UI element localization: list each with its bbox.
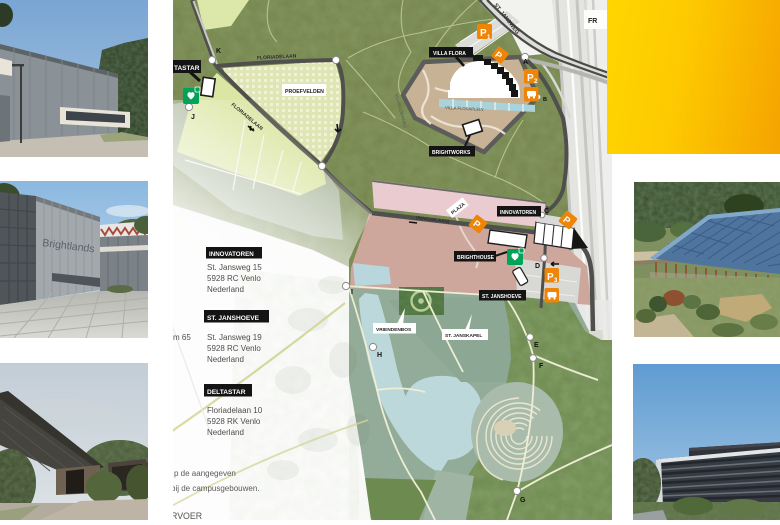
svg-text:Nederland: Nederland (207, 285, 244, 294)
svg-text:ST. JANSKAPEL: ST. JANSKAPEL (445, 333, 482, 339)
svg-text:FR: FR (588, 18, 597, 25)
svg-text:RVOER: RVOER (173, 511, 202, 520)
svg-text:INNOVATOREN: INNOVATOREN (500, 210, 537, 216)
svg-text:K: K (216, 48, 221, 55)
svg-text:D: D (535, 263, 540, 270)
svg-text:A: A (523, 59, 528, 66)
svg-text:TASTAR: TASTAR (174, 65, 200, 72)
svg-text:E: E (534, 342, 539, 349)
svg-text:INNOVATOREN: INNOVATOREN (209, 251, 254, 258)
svg-text:G: G (520, 497, 526, 504)
svg-text:DELTASTAR: DELTASTAR (207, 389, 246, 396)
svg-text:C: C (544, 208, 549, 215)
svg-text:Nederland: Nederland (207, 428, 244, 437)
svg-text:BRIGHTWORKS: BRIGHTWORKS (432, 150, 471, 156)
svg-text:5928 RC Venlo: 5928 RC Venlo (207, 274, 261, 283)
svg-text:Nederland: Nederland (207, 355, 244, 364)
svg-text:5928 RC Venlo: 5928 RC Venlo (207, 344, 261, 353)
svg-text:F: F (539, 363, 544, 370)
svg-text:P: P (547, 272, 554, 283)
svg-text:VILLA FLORA: VILLA FLORA (433, 51, 466, 57)
svg-text:P: P (527, 73, 534, 84)
svg-text:PROEFVELDEN: PROEFVELDEN (285, 89, 324, 95)
svg-text:ST. JANSHOEVE: ST. JANSHOEVE (207, 315, 260, 322)
svg-text:m 65: m 65 (173, 333, 191, 342)
svg-text:J: J (191, 114, 195, 121)
svg-text:H: H (377, 352, 382, 359)
svg-text:P: P (480, 28, 487, 39)
svg-text:Floriadelaan 10: Floriadelaan 10 (207, 406, 263, 415)
svg-text:B: B (543, 97, 547, 103)
svg-text:p de aangegeven: p de aangegeven (174, 469, 236, 478)
svg-text:5928 RK Venlo: 5928 RK Venlo (207, 417, 261, 426)
svg-text:St. Jansweg 19: St. Jansweg 19 (207, 333, 262, 342)
svg-text:ST. JANSHOEVE: ST. JANSHOEVE (482, 294, 522, 300)
svg-text:St. Jansweg 15: St. Jansweg 15 (207, 263, 262, 272)
svg-text:I: I (351, 289, 353, 296)
svg-text:bij de campusgebouwen.: bij de campusgebouwen. (173, 484, 260, 493)
svg-text:BRIGHTHOUSE: BRIGHTHOUSE (457, 255, 495, 261)
svg-text:VRIENDENBOS: VRIENDENBOS (376, 327, 412, 333)
